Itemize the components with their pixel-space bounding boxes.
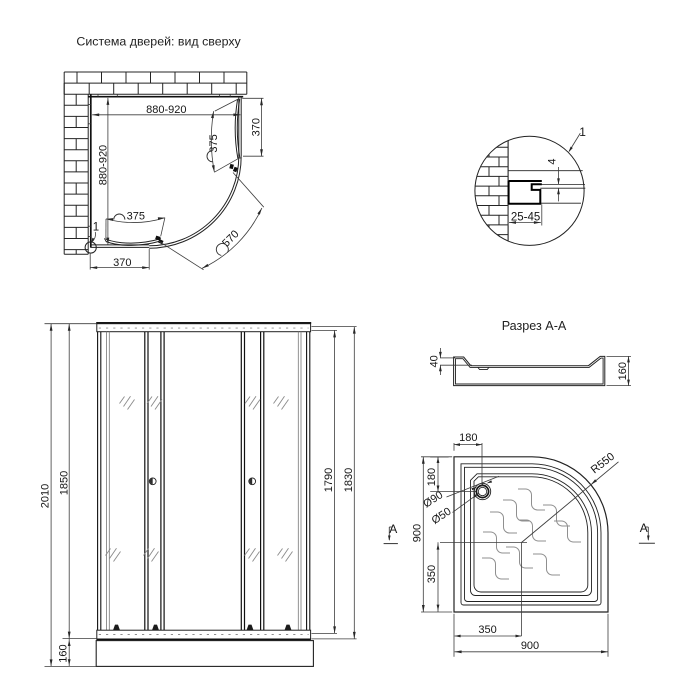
svg-text:A: A xyxy=(389,522,397,536)
svg-text:1830: 1830 xyxy=(343,468,355,492)
svg-text:375: 375 xyxy=(208,134,220,152)
svg-text:350: 350 xyxy=(478,624,496,636)
svg-text:2010: 2010 xyxy=(40,484,52,508)
svg-text:370: 370 xyxy=(113,257,131,269)
svg-text:25-45: 25-45 xyxy=(511,211,540,223)
svg-text:160: 160 xyxy=(617,362,629,380)
svg-text:Система дверей: вид сверху: Система дверей: вид сверху xyxy=(76,34,241,48)
svg-text:180: 180 xyxy=(426,468,438,486)
svg-text:1790: 1790 xyxy=(323,468,335,492)
svg-text:180: 180 xyxy=(459,432,477,444)
svg-text:1850: 1850 xyxy=(58,471,70,495)
svg-text:880-920: 880-920 xyxy=(146,104,186,116)
svg-text:370: 370 xyxy=(250,118,262,136)
svg-text:Разрез А-А: Разрез А-А xyxy=(502,319,567,333)
svg-text:375: 375 xyxy=(127,210,145,222)
svg-text:40: 40 xyxy=(429,355,441,367)
svg-text:1: 1 xyxy=(93,222,99,234)
svg-text:160: 160 xyxy=(57,644,69,662)
svg-text:4: 4 xyxy=(547,159,559,165)
svg-text:900: 900 xyxy=(412,524,424,542)
svg-text:A: A xyxy=(640,521,648,535)
svg-text:1: 1 xyxy=(579,125,586,139)
svg-text:880-920: 880-920 xyxy=(98,145,110,185)
svg-text:900: 900 xyxy=(521,640,539,652)
svg-text:350: 350 xyxy=(426,565,438,583)
